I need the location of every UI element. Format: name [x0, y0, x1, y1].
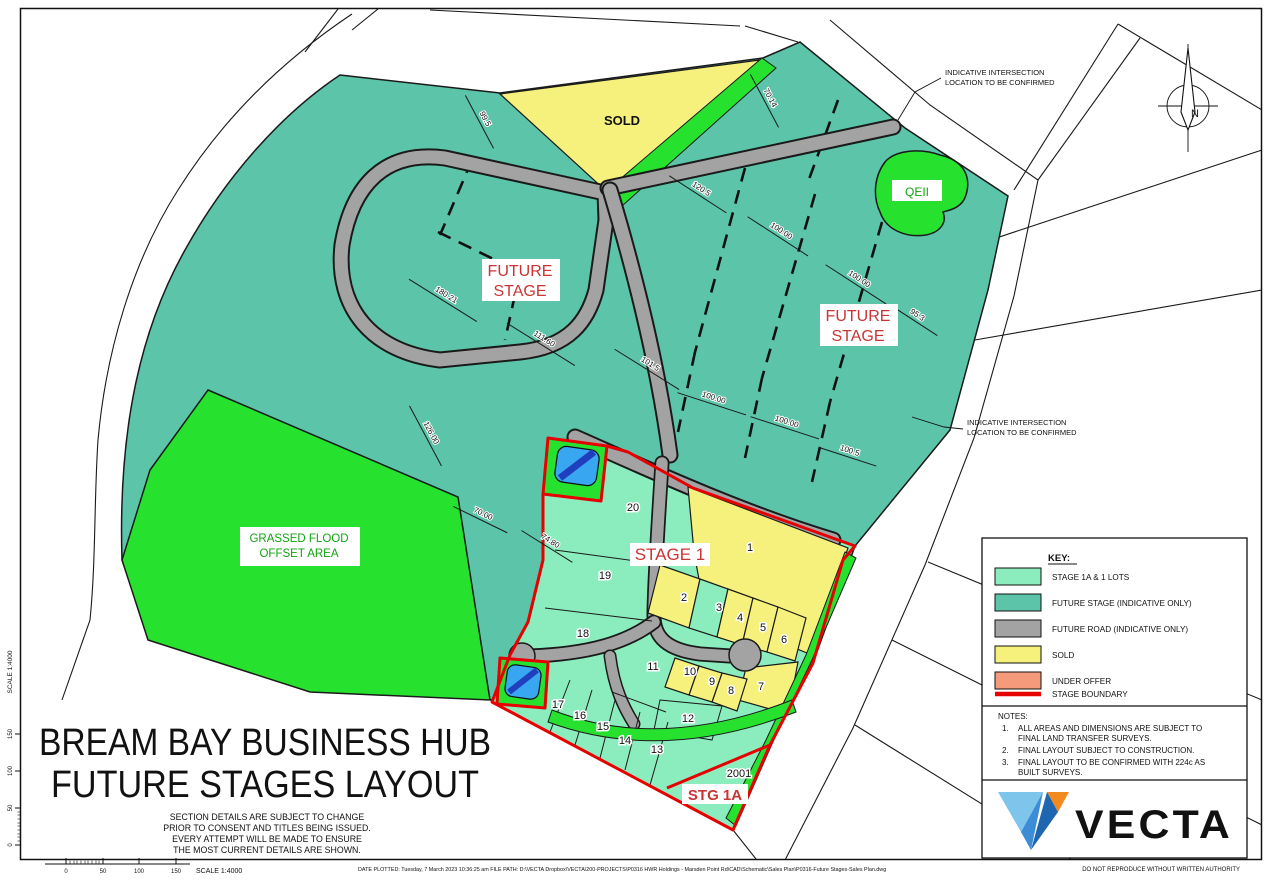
- callout-text: INDICATIVE INTERSECTION: [967, 418, 1066, 427]
- disclaimer-line: EVERY ATTEMPT WILL BE MADE TO ENSURE: [172, 834, 362, 844]
- footer: DATE PLOTTED: Tuesday, 7 March 2023 10:3…: [358, 867, 1240, 873]
- lot-number: 17: [552, 699, 564, 711]
- disclaimer-line: THE MOST CURRENT DETAILS ARE SHOWN.: [173, 845, 361, 855]
- lot-number: 19: [599, 570, 611, 582]
- scale-tick-label: 150: [8, 728, 14, 739]
- key-swatch: [995, 646, 1041, 663]
- note-num: 2.: [1002, 746, 1009, 755]
- lot-number: 2: [681, 592, 687, 604]
- map-canvas: 99.5 180.21 111.60 101.5 126.00 70.00 74…: [0, 0, 1269, 887]
- note-num: 3.: [1002, 758, 1009, 767]
- callout-text: LOCATION TO BE CONFIRMED: [945, 78, 1055, 87]
- brand-name: VECTA: [1075, 803, 1233, 847]
- scale-tick-label: 100: [8, 765, 14, 776]
- callout-text: INDICATIVE INTERSECTION: [945, 68, 1044, 77]
- lot-number: 14: [619, 735, 631, 747]
- future-stage-label: STAGE: [493, 283, 546, 300]
- lot-number: 4: [737, 612, 743, 624]
- key-swatch: [995, 568, 1041, 585]
- lot-number: 10: [684, 666, 696, 678]
- note-line: BUILT SURVEYS.: [1018, 768, 1082, 777]
- note-num: 1.: [1002, 724, 1009, 733]
- lot-number: 1: [747, 542, 753, 554]
- title-block: BREAM BAY BUSINESS HUB FUTURE STAGES LAY…: [39, 722, 491, 855]
- lot-number: 11: [647, 661, 658, 673]
- scale-tick-label: 150: [171, 869, 182, 875]
- north-letter: N: [1191, 108, 1199, 120]
- future-stage-label: STAGE: [831, 328, 884, 345]
- plan-sheet: 99.5 180.21 111.60 101.5 126.00 70.00 74…: [0, 0, 1269, 887]
- notes-title: NOTES:: [998, 712, 1028, 721]
- lot-number: 16: [574, 710, 586, 722]
- sold-label: SOLD: [604, 113, 640, 128]
- lot-number: 5: [760, 622, 766, 634]
- scale-bar-left: 0 50 100 150 SCALE 1:4000: [7, 650, 21, 847]
- key-swatch: [995, 594, 1041, 611]
- lot-number: 20: [627, 502, 639, 514]
- scale-label: SCALE 1:4000: [196, 868, 242, 875]
- disclaimer-line: PRIOR TO CONSENT AND TITLES BEING ISSUED…: [163, 823, 371, 833]
- key-label: STAGE BOUNDARY: [1052, 690, 1128, 699]
- callout-text: LOCATION TO BE CONFIRMED: [967, 428, 1077, 437]
- key-title: KEY:: [1048, 553, 1070, 564]
- note-line: ALL AREAS AND DIMENSIONS ARE SUBJECT TO: [1018, 724, 1202, 733]
- stormwater-pond-north: [543, 438, 607, 501]
- lot-number-2001: 2001: [727, 768, 751, 780]
- scale-tick-label: 50: [8, 804, 14, 811]
- info-panel: KEY: STAGE 1A & 1 LOTS FUTURE STAGE (IND…: [982, 538, 1247, 858]
- callout-north: INDICATIVE INTERSECTION LOCATION TO BE C…: [898, 68, 1055, 120]
- sheet-title-line1: BREAM BAY BUSINESS HUB: [39, 722, 491, 764]
- key-label: STAGE 1A & 1 LOTS: [1052, 573, 1130, 582]
- scale-tick-label: 0: [64, 869, 68, 875]
- lot-number: 12: [682, 713, 694, 725]
- lot-number: 9: [709, 676, 715, 688]
- flood-label: GRASSED FLOOD: [249, 533, 348, 545]
- lot-number: 13: [651, 744, 663, 756]
- future-stage-label: FUTURE: [826, 308, 891, 325]
- note-line: FINAL LAND TRANSFER SURVEYS.: [1018, 734, 1152, 743]
- key-label: FUTURE STAGE (INDICATIVE ONLY): [1052, 599, 1192, 608]
- scale-tick-label: 50: [100, 869, 107, 875]
- lot-number: 8: [728, 685, 734, 697]
- key-swatch: [995, 672, 1041, 689]
- key-label: SOLD: [1052, 651, 1074, 660]
- flood-label: OFFSET AREA: [259, 548, 338, 560]
- key-swatch: [995, 620, 1041, 637]
- note-line: FINAL LAYOUT TO BE CONFIRMED WITH 224c A…: [1018, 758, 1205, 767]
- lot-number: 3: [716, 602, 722, 614]
- stg1a-label: STG 1A: [688, 787, 742, 804]
- key-label: FUTURE ROAD (INDICATIVE ONLY): [1052, 625, 1188, 634]
- scale-tick-label: 0: [8, 843, 14, 847]
- disclaimer-line: SECTION DETAILS ARE SUBJECT TO CHANGE: [170, 812, 365, 822]
- footer-plot-info: DATE PLOTTED: Tuesday, 7 March 2023 10:3…: [358, 867, 886, 873]
- scale-tick-label: 100: [134, 869, 145, 875]
- north-arrow-icon: N: [1158, 44, 1218, 152]
- note-line: FINAL LAYOUT SUBJECT TO CONSTRUCTION.: [1018, 746, 1194, 755]
- lot-number: 7: [758, 681, 764, 693]
- future-stage-label: FUTURE: [488, 263, 553, 280]
- lot-number: 15: [597, 721, 609, 733]
- scale-bar-bottom: 0 50 100 150 SCALE 1:4000: [45, 858, 242, 875]
- footer-copyright: DO NOT REPRODUCE WITHOUT WRITTEN AUTHORI…: [1082, 867, 1240, 873]
- key-label: UNDER OFFER: [1052, 677, 1111, 686]
- sheet-title-line2: FUTURE STAGES LAYOUT: [51, 764, 479, 806]
- qeii-label: QEII: [905, 185, 929, 199]
- lot-number: 18: [577, 628, 589, 640]
- stage1-label: STAGE 1: [635, 545, 706, 564]
- scale-label: SCALE 1:4000: [7, 650, 14, 693]
- lot-number: 6: [781, 634, 787, 646]
